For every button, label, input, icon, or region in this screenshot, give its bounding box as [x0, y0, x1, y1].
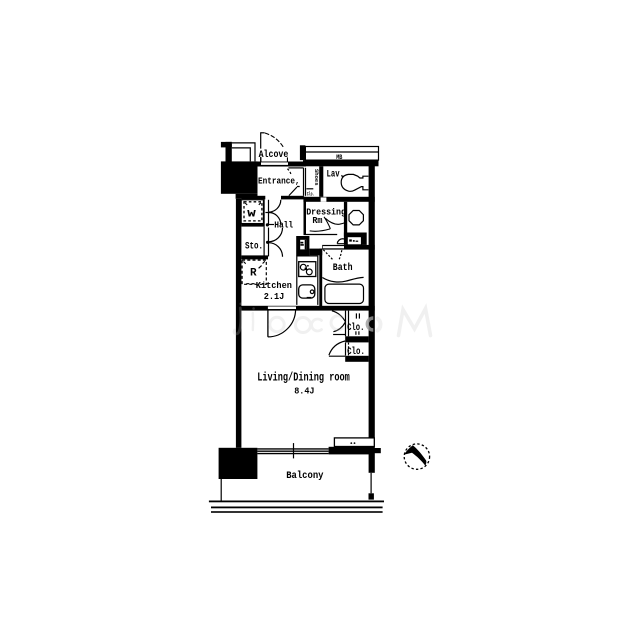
svg-text:Alcove: Alcove — [259, 149, 289, 161]
svg-text:Hall: Hall — [274, 220, 294, 230]
svg-text:MB: MB — [336, 154, 342, 161]
svg-text:W: W — [247, 209, 256, 221]
svg-text:8.4J: 8.4J — [294, 385, 314, 396]
svg-text:Kitchen: Kitchen — [256, 280, 292, 291]
svg-text:Clo.: Clo. — [307, 192, 314, 198]
svg-text:Entrance,: Entrance, — [258, 175, 300, 186]
svg-text:Living/Dining room: Living/Dining room — [257, 370, 350, 384]
svg-text:Sto.: Sto. — [245, 240, 263, 252]
svg-text:Balcony: Balcony — [286, 470, 324, 482]
svg-text:Rm: Rm — [312, 215, 322, 226]
svg-text:Bath: Bath — [333, 262, 353, 274]
svg-text:Shoes: Shoes — [313, 169, 319, 186]
svg-text:R: R — [250, 268, 257, 280]
svg-text:2.1J: 2.1J — [264, 291, 285, 302]
